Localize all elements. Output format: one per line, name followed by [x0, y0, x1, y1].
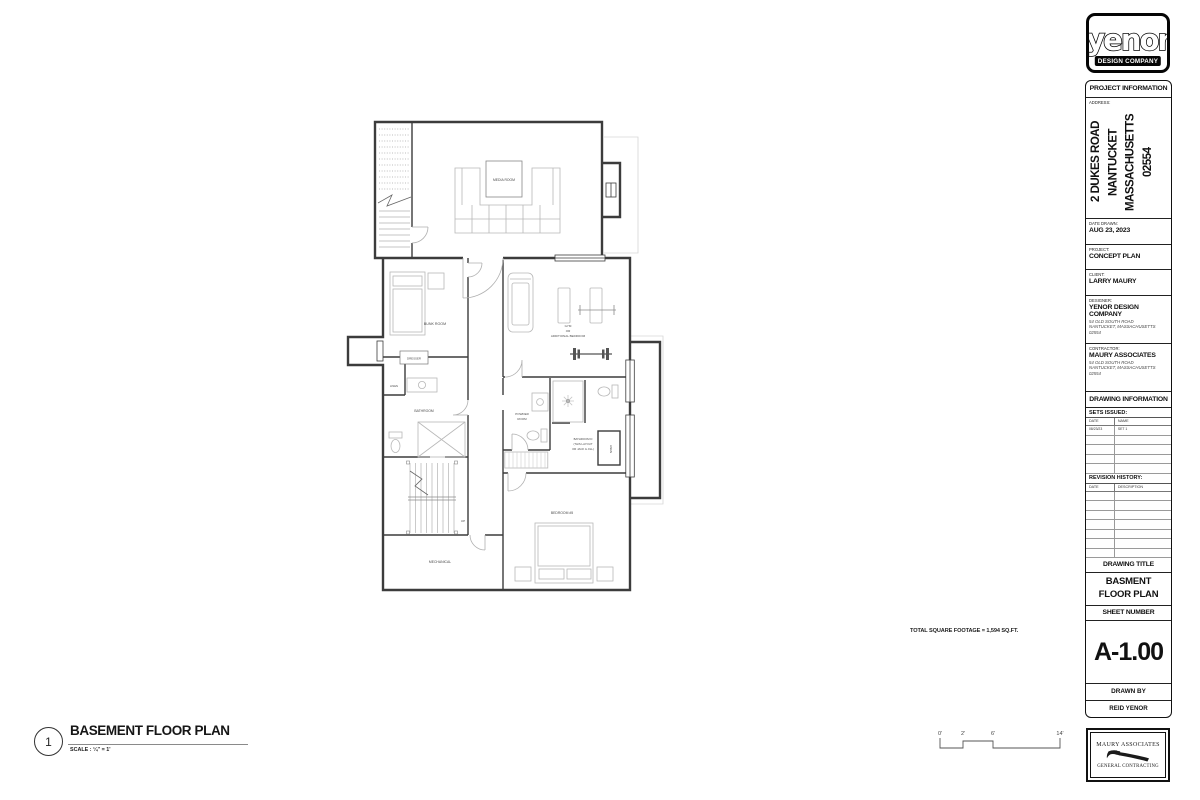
set-name: SET 1 [1115, 426, 1171, 435]
room-label-gym-2: OR [566, 329, 571, 333]
sets-issued-row: 08/23/23 SET 1 [1086, 426, 1171, 436]
maury-logo-tagline: GENERAL CONTRACTING [1097, 764, 1159, 769]
drawn-by-value: REID YENOR [1086, 701, 1171, 717]
date-drawn-value: AUG 23, 2023 [1089, 227, 1168, 234]
graphic-scale-bar: 0' 2' 6' 14' [930, 726, 1075, 752]
room-label-media-room: MEDIA ROOM [493, 178, 515, 182]
sets-col-date: DATE [1086, 418, 1115, 425]
room-label-gym-1: GYM [565, 324, 572, 328]
room-label-linen: LINEN [390, 384, 398, 388]
designer-value: YENOR DESIGN COMPANY [1089, 304, 1168, 318]
project-label: PROJECT: [1089, 247, 1168, 252]
scale-tick-14: 14' [1056, 731, 1063, 737]
drawing-title-line: BASMENT [1106, 576, 1152, 589]
room-label-gym-3: ADDITIONAL BEDROOM [551, 334, 586, 338]
scale-tick-6: 6' [991, 731, 995, 737]
designer-address-line: 02554 [1089, 330, 1168, 336]
client-section: CLIENT: LARRY MAURY [1086, 270, 1171, 296]
sets-col-name: NAME [1115, 418, 1171, 425]
room-label-dresser: DRESSER [407, 357, 421, 361]
address-line: 2 DUKES ROAD [1088, 108, 1105, 216]
drawn-by-header: DRAWN BY [1086, 684, 1171, 701]
total-sqft-note: TOTAL SQUARE FOOTAGE = 1,594 SQ.FT. [910, 628, 1018, 634]
sets-issued-label: SETS ISSUED: [1086, 408, 1171, 418]
maury-logo-name: MAURY ASSOCIATES [1096, 742, 1159, 748]
yenor-logo-name: yenor [1089, 23, 1167, 57]
stairs-up-label: UP [461, 519, 465, 523]
sets-issued-row [1086, 436, 1171, 446]
revision-row [1086, 549, 1171, 559]
sets-issued-row [1086, 455, 1171, 465]
bench [590, 288, 602, 323]
detail-number-bubble: 1 [34, 727, 63, 756]
sheet-footer-title: BASEMENT FLOOR PLAN [70, 723, 230, 738]
project-section: PROJECT: CONCEPT PLAN [1086, 245, 1171, 270]
drawing-title-header: DRAWING TITLE [1086, 558, 1171, 573]
bench [558, 288, 570, 323]
contractor-address-line: 02554 [1089, 371, 1168, 377]
room-label-linen-2: LINEN [609, 445, 613, 453]
room-label-mechanical: MECHANICAL [429, 560, 451, 564]
designer-section: DESIGNER: YENOR DESIGN COMPANY 54 OLD SO… [1086, 296, 1171, 344]
bed-bunk [390, 272, 425, 335]
sets-issued-row [1086, 445, 1171, 455]
room-label-bath-d-1: BATHROOM D [574, 437, 593, 441]
contractor-section: CONTRACTOR: MAURY ASSOCIATES 54 OLD SOUT… [1086, 344, 1171, 392]
designer-label: DESIGNER: [1089, 298, 1168, 303]
date-drawn-section: DATE DRAWN: AUG 23, 2023 [1086, 219, 1171, 245]
yenor-logo: yenor DESIGN COMPANY [1086, 13, 1170, 73]
floor-plan-drawing: MEDIA ROOM BUNK ROOM DRESSER LINEN BATHR… [340, 105, 730, 610]
drawing-title: BASMENT FLOOR PLAN [1086, 573, 1171, 606]
revision-history-columns: DATE DESCRIPTION [1086, 484, 1171, 492]
revision-row [1086, 501, 1171, 511]
room-label-powder-1: POWDER [515, 412, 529, 416]
room-label-bunk-room: BUNK ROOM [424, 322, 446, 326]
project-information-header: PROJECT INFORMATION [1086, 81, 1171, 98]
revision-row [1086, 520, 1171, 530]
drawing-title-line: FLOOR PLAN [1099, 589, 1159, 602]
address-line: 02554 [1140, 108, 1157, 216]
room-labels: MEDIA ROOM BUNK ROOM DRESSER LINEN BATHR… [390, 161, 613, 564]
detail-number: 1 [45, 735, 52, 749]
room-label-bath-d-3: OR JACK & JILL) [572, 447, 594, 451]
revision-row [1086, 511, 1171, 521]
title-block: PROJECT INFORMATION ADDRESS: 2 DUKES ROA… [1085, 80, 1172, 718]
hammer-icon [1099, 749, 1157, 763]
contractor-label: CONTRACTOR: [1089, 346, 1168, 351]
room-label-bedroom5: BEDROOM #5 [551, 511, 573, 515]
nightstand [597, 567, 613, 581]
project-value: CONCEPT PLAN [1089, 253, 1168, 260]
room-label-bathroom: BATHROOM [414, 409, 434, 413]
toilet [389, 432, 402, 438]
revision-row [1086, 530, 1171, 540]
stairs-upper [378, 129, 411, 247]
rev-col-description: DESCRIPTION [1115, 484, 1171, 491]
set-date: 08/23/23 [1086, 426, 1115, 435]
footer-divider [68, 744, 248, 745]
project-address: 2 DUKES ROAD NANTUCKET MASSACHUSETTS 025… [1088, 108, 1169, 216]
revision-row [1086, 539, 1171, 549]
scale-tick-0: 0' [938, 731, 942, 737]
address-label: ADDRESS: [1089, 100, 1110, 105]
rev-col-date: DATE [1086, 484, 1115, 491]
nightstand [515, 567, 531, 581]
contractor-value: MAURY ASSOCIATES [1089, 352, 1168, 359]
maury-associates-logo: MAURY ASSOCIATES GENERAL CONTRACTING [1086, 728, 1170, 782]
room-label-powder-2: ROOM [517, 417, 527, 421]
room-label-bath-d-2: (THIS LAYOUT [573, 442, 592, 446]
stairs-lower [407, 461, 458, 534]
revision-row [1086, 492, 1171, 502]
client-value: LARRY MAURY [1089, 278, 1168, 285]
client-label: CLIENT: [1089, 272, 1168, 277]
date-drawn-label: DATE DRAWN: [1089, 221, 1168, 226]
sheet-number: A-1.00 [1086, 621, 1171, 684]
drawing-information-header: DRAWING INFORMATION [1086, 392, 1171, 408]
yenor-logo-tagline: DESIGN COMPANY [1095, 56, 1161, 66]
address-line: NANTUCKET [1105, 108, 1122, 216]
scale-bar-line [940, 738, 1060, 748]
revision-history-label: REVISION HISTORY: [1086, 474, 1171, 484]
sets-issued-row [1086, 464, 1171, 474]
sets-issued-columns: DATE NAME [1086, 418, 1171, 426]
nightstand [428, 273, 444, 289]
address-line: MASSACHUSETTS [1123, 108, 1140, 216]
project-address-section: ADDRESS: 2 DUKES ROAD NANTUCKET MASSACHU… [1086, 98, 1171, 219]
footer-scale-note: SCALE : ¼" = 1' [70, 747, 111, 753]
scale-tick-2: 2' [961, 731, 965, 737]
doors [412, 227, 528, 550]
sheet-number-header: SHEET NUMBER [1086, 606, 1171, 621]
